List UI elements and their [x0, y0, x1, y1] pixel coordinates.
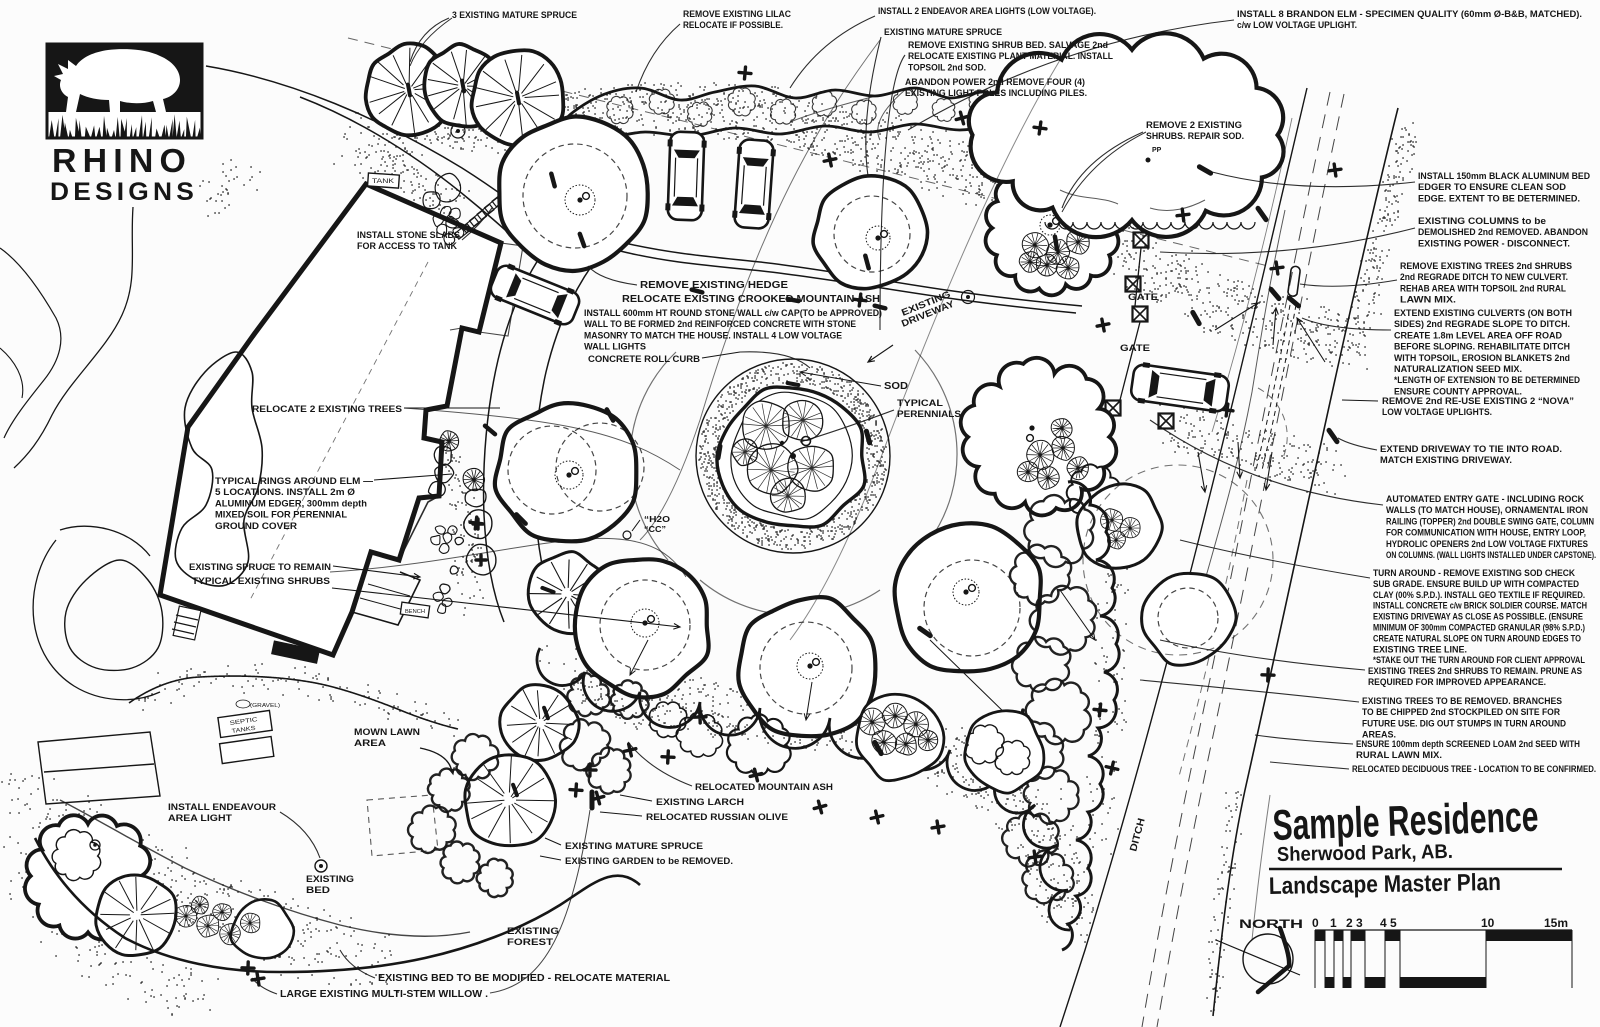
svg-text:RELOCATED MOUNTAIN ASH: RELOCATED MOUNTAIN ASH [695, 782, 833, 793]
svg-text:PERENNIALS: PERENNIALS [897, 409, 961, 420]
svg-text:RURAL LAWN MIX.: RURAL LAWN MIX. [1356, 750, 1442, 761]
svg-text:EXTEND DRIVEWAY TO TIE INTO RO: EXTEND DRIVEWAY TO TIE INTO ROAD. [1380, 444, 1562, 455]
svg-text:SUB GRADE. ENSURE BUILD UP WIT: SUB GRADE. ENSURE BUILD UP WITH COMPACTE… [1373, 579, 1579, 590]
svg-text:EXISTING DRIVEWAY AS CLOSE AS: EXISTING DRIVEWAY AS CLOSE AS POSSIBLE. … [1373, 612, 1583, 623]
svg-text:EXISTING SPRUCE TO REMAIN: EXISTING SPRUCE TO REMAIN [189, 562, 331, 573]
svg-text:EDGER TO ENSURE CLEAN SOD: EDGER TO ENSURE CLEAN SOD [1418, 182, 1566, 193]
svg-text:GATE: GATE [1128, 292, 1158, 302]
svg-text:REHAB AREA WITH TOPSOIL 2nd RU: REHAB AREA WITH TOPSOIL 2nd RURAL [1400, 283, 1566, 294]
svg-text:EXISTING POWER - DISCONNECT.: EXISTING POWER - DISCONNECT. [1418, 238, 1570, 249]
svg-text:EDGE. EXTENT TO BE DETERMINED.: EDGE. EXTENT TO BE DETERMINED. [1418, 193, 1580, 204]
svg-text:AUTOMATED ENTRY GATE - INCLUDI: AUTOMATED ENTRY GATE - INCLUDING ROCK [1386, 494, 1584, 505]
svg-text:RHINO: RHINO [52, 142, 192, 179]
svg-text:RELOCATE EXISTING CROOKED MOUN: RELOCATE EXISTING CROOKED MOUNTAIN ASH [622, 294, 880, 305]
svg-text:AREA: AREA [354, 738, 386, 749]
svg-text:Landscape Master Plan: Landscape Master Plan [1269, 869, 1501, 900]
svg-text:FOREST: FOREST [507, 937, 553, 948]
svg-text:EXISTING: EXISTING [507, 926, 559, 937]
svg-text:EXISTING TREES TO BE REMOVED.: EXISTING TREES TO BE REMOVED. BRANCHES [1362, 696, 1562, 707]
svg-text:2 3: 2 3 [1346, 916, 1363, 930]
svg-text:15m: 15m [1544, 916, 1568, 930]
svg-text:TANK: TANK [372, 179, 394, 185]
svg-text:WALLS (TO MATCH HOUSE), ORNAME: WALLS (TO MATCH HOUSE), ORNAMENTAL IRON [1386, 505, 1588, 516]
svg-text:ALUMINUM EDGER, 300mm depth: ALUMINUM EDGER, 300mm depth [215, 498, 367, 509]
svg-text:INSTALL CONCRETE c/w BRICK SOL: INSTALL CONCRETE c/w BRICK SOLDIER COURS… [1373, 601, 1587, 612]
svg-text:TYPICAL RINGS AROUND ELM —: TYPICAL RINGS AROUND ELM — [215, 476, 374, 487]
svg-text:INSTALL 600mm HT ROUND STONE W: INSTALL 600mm HT ROUND STONE WALL c/w CA… [584, 308, 882, 319]
svg-text:3 EXISTING MATURE SPRUCE: 3 EXISTING MATURE SPRUCE [452, 10, 577, 21]
svg-text:REMOVE 2nd RE-USE EXISTING 2 “: REMOVE 2nd RE-USE EXISTING 2 “NOVA” [1382, 396, 1574, 407]
svg-text:REMOVE 2 EXISTING: REMOVE 2 EXISTING [1146, 120, 1242, 131]
svg-text:FUTURE USE. DIG OUT STUMPS IN: FUTURE USE. DIG OUT STUMPS IN TURN AROUN… [1362, 718, 1566, 729]
svg-text:REMOVE EXISTING TREES 2nd SHRU: REMOVE EXISTING TREES 2nd SHRUBS [1400, 261, 1572, 272]
svg-text:Sherwood Park, AB.: Sherwood Park, AB. [1277, 841, 1453, 866]
svg-text:LARGE EXISTING MULTI-STEM WILL: LARGE EXISTING MULTI-STEM WILLOW . [280, 989, 488, 1000]
svg-text:1: 1 [1330, 916, 1337, 930]
svg-text:(GRAVEL): (GRAVEL) [250, 703, 280, 709]
svg-text:EXISTING MATURE SPRUCE: EXISTING MATURE SPRUCE [565, 841, 703, 852]
svg-text:PP: PP [1152, 147, 1162, 154]
svg-text:BED: BED [306, 885, 330, 896]
svg-text:AREA LIGHT: AREA LIGHT [168, 813, 232, 824]
svg-text:RELOCATED RUSSIAN OLIVE: RELOCATED RUSSIAN OLIVE [646, 812, 788, 823]
svg-text:TYPICAL: TYPICAL [897, 398, 943, 409]
svg-text:RELOCATE IF POSSIBLE.: RELOCATE IF POSSIBLE. [683, 20, 783, 31]
svg-text:MOWN LAWN: MOWN LAWN [354, 727, 420, 738]
svg-text:10: 10 [1481, 916, 1495, 930]
svg-text:INSTALL 2 ENDEAVOR AREA LIGHTS: INSTALL 2 ENDEAVOR AREA LIGHTS (LOW VOLT… [878, 6, 1096, 17]
svg-text:CREATE NATURAL SLOPE ON TURN A: CREATE NATURAL SLOPE ON TURN AROUND EDGE… [1373, 633, 1581, 644]
svg-text:LAWN MIX.: LAWN MIX. [1400, 295, 1456, 306]
svg-text:c/w LOW VOLTAGE UPLIGHT.: c/w LOW VOLTAGE UPLIGHT. [1237, 20, 1357, 31]
svg-text:EXISTING COLUMNS to be: EXISTING COLUMNS to be [1418, 216, 1546, 227]
svg-text:EXISTING MATURE SPRUCE: EXISTING MATURE SPRUCE [884, 27, 1002, 38]
svg-text:FOR ACCESS TO TANK: FOR ACCESS TO TANK [357, 241, 457, 252]
svg-text:RAILING (TOPPER) 2nd DOUBLE SW: RAILING (TOPPER) 2nd DOUBLE SWING GATE, … [1386, 516, 1594, 527]
svg-text:BENCH: BENCH [405, 609, 425, 615]
svg-text:SHRUBS. REPAIR SOD.: SHRUBS. REPAIR SOD. [1146, 131, 1244, 142]
svg-text:EXISTING TREE LINE.: EXISTING TREE LINE. [1373, 644, 1467, 655]
svg-text:NATURALIZATION SEED MIX.: NATURALIZATION SEED MIX. [1394, 364, 1522, 375]
svg-text:INSTALL 8 BRANDON ELM - SPECIM: INSTALL 8 BRANDON ELM - SPECIMEN QUALITY… [1237, 9, 1582, 20]
svg-text:LOW VOLTAGE UPLIGHTS.: LOW VOLTAGE UPLIGHTS. [1382, 407, 1492, 418]
svg-text:REMOVE EXISTING SHRUB BED. SAL: REMOVE EXISTING SHRUB BED. SALVAGE 2nd [908, 40, 1108, 51]
svg-text:ON COLUMNS. (WALL LIGHTS INSTA: ON COLUMNS. (WALL LIGHTS INSTALLED UNDER… [1386, 550, 1596, 561]
svg-text:RELOCATED DECIDUOUS TREE - LOC: RELOCATED DECIDUOUS TREE - LOCATION TO B… [1352, 764, 1596, 775]
svg-text:REQUIRED FOR IMPROVED APPEARAN: REQUIRED FOR IMPROVED APPEARANCE. [1368, 677, 1546, 688]
svg-text:CREATE 1.8m LEVEL AREA OFF ROA: CREATE 1.8m LEVEL AREA OFF ROAD [1394, 330, 1562, 341]
svg-text:FOR COMMUNICATION WITH HOUSE,: FOR COMMUNICATION WITH HOUSE, ENTRY LOOP… [1386, 528, 1586, 539]
svg-text:INSTALL ENDEAVOUR: INSTALL ENDEAVOUR [168, 802, 276, 813]
svg-text:DEMOLISHED 2nd REMOVED. ABANDO: DEMOLISHED 2nd REMOVED. ABANDON [1418, 227, 1588, 238]
svg-text:MINIMUM OF 300mm COMPACTED GRA: MINIMUM OF 300mm COMPACTED GRANULAR (98%… [1373, 623, 1585, 634]
svg-text:0: 0 [1312, 916, 1319, 930]
svg-text:4 5: 4 5 [1380, 916, 1397, 930]
svg-text:TOPSOIL 2nd SOD.: TOPSOIL 2nd SOD. [908, 62, 986, 73]
svg-text:CONCRETE ROLL CURB: CONCRETE ROLL CURB [588, 354, 700, 365]
svg-text:SOD: SOD [884, 381, 908, 392]
svg-text:EXISTING LARCH: EXISTING LARCH [656, 797, 744, 808]
svg-text:EXTEND EXISTING CULVERTS (ON B: EXTEND EXISTING CULVERTS (ON BOTH [1394, 308, 1572, 319]
svg-text:INSTALL STONE SLABS: INSTALL STONE SLABS [357, 230, 460, 241]
svg-text:DESIGNS: DESIGNS [50, 178, 198, 206]
svg-text:RELOCATE 2 EXISTING TREES: RELOCATE 2 EXISTING TREES [252, 404, 402, 415]
svg-text:BEFORE SLOPING. REHABILITATE D: BEFORE SLOPING. REHABILITATE DITCH [1394, 342, 1570, 353]
svg-text:ABANDON POWER 2nd REMOVE FOUR: ABANDON POWER 2nd REMOVE FOUR (4) [905, 77, 1085, 88]
svg-text:“H2O: “H2O [644, 514, 670, 524]
svg-text:REMOVE EXISTING LILAC: REMOVE EXISTING LILAC [683, 9, 791, 20]
svg-text:EXISTING: EXISTING [306, 874, 354, 885]
svg-text:NORTH: NORTH [1239, 917, 1303, 931]
svg-text:RELOCATE EXISTING PLANT MATERI: RELOCATE EXISTING PLANT MATERIAL. INSTAL… [908, 51, 1113, 62]
svg-text:*STAKE OUT THE TURN AROUND FOR: *STAKE OUT THE TURN AROUND FOR CLIENT AP… [1373, 655, 1585, 666]
svg-text:TURN AROUND - REMOVE EXISTING: TURN AROUND - REMOVE EXISTING SOD CHECK [1373, 568, 1575, 579]
svg-text:MATCH EXISTING DRIVEWAY.: MATCH EXISTING DRIVEWAY. [1380, 455, 1512, 466]
svg-text:CLAY (00% S.P.D.). INSTALL GEO: CLAY (00% S.P.D.). INSTALL GEO TEXTILE I… [1373, 590, 1585, 601]
svg-text:ENSURE 100mm depth SCREENED LO: ENSURE 100mm depth SCREENED LOAM 2nd SEE… [1356, 739, 1580, 750]
svg-text:EXISTING GARDEN to be REMOVED.: EXISTING GARDEN to be REMOVED. [565, 856, 733, 867]
svg-text:EXISTING LIGHT POLES INCLUDING: EXISTING LIGHT POLES INCLUDING PILES. [905, 88, 1087, 99]
svg-text:*LENGTH OF EXTENSION TO BE DET: *LENGTH OF EXTENSION TO BE DETERMINED [1394, 375, 1580, 386]
svg-text:WALL LIGHTS: WALL LIGHTS [584, 342, 646, 353]
svg-text:HYDROLIC OPENERS 2nd LOW VOLTA: HYDROLIC OPENERS 2nd LOW VOLTAGE FIXTURE… [1386, 539, 1588, 550]
svg-text:MIXED SOIL FOR PERENNIAL: MIXED SOIL FOR PERENNIAL [215, 510, 347, 521]
svg-text:SIDES) 2nd REGRADE SLOPE TO DI: SIDES) 2nd REGRADE SLOPE TO DITCH. [1394, 319, 1570, 330]
svg-text:TO BE CHIPPED 2nd STOCKPILED O: TO BE CHIPPED 2nd STOCKPILED ON SITE FOR [1362, 707, 1560, 718]
svg-text:GATE: GATE [1120, 343, 1150, 353]
svg-text:REMOVE EXISTING HEDGE: REMOVE EXISTING HEDGE [640, 280, 788, 291]
svg-text:GROUND COVER: GROUND COVER [215, 521, 297, 532]
svg-text:TYPICAL EXISTING SHRUBS: TYPICAL EXISTING SHRUBS [192, 576, 330, 587]
svg-text:EXISTING TREES 2nd SHRUBS TO R: EXISTING TREES 2nd SHRUBS TO REMAIN. PRU… [1368, 666, 1582, 677]
svg-text:WITH TOPSOIL, EROSION BLANKETS: WITH TOPSOIL, EROSION BLANKETS 2nd [1394, 353, 1570, 364]
svg-text:5 LOCATIONS. INSTALL 2m Ø: 5 LOCATIONS. INSTALL 2m Ø [215, 487, 355, 498]
svg-text:2nd REGRADE DITCH TO NEW CULVE: 2nd REGRADE DITCH TO NEW CULVERT. [1400, 272, 1568, 283]
svg-text:WALL TO BE FORMED 2nd REINFORC: WALL TO BE FORMED 2nd REINFORCED CONCRET… [584, 319, 856, 330]
svg-text:INSTALL 150mm BLACK ALUMINUM B: INSTALL 150mm BLACK ALUMINUM BED [1418, 171, 1590, 182]
svg-text:MASONRY TO MATCH THE HOUSE. IN: MASONRY TO MATCH THE HOUSE. INSTALL 4 LO… [584, 330, 842, 341]
